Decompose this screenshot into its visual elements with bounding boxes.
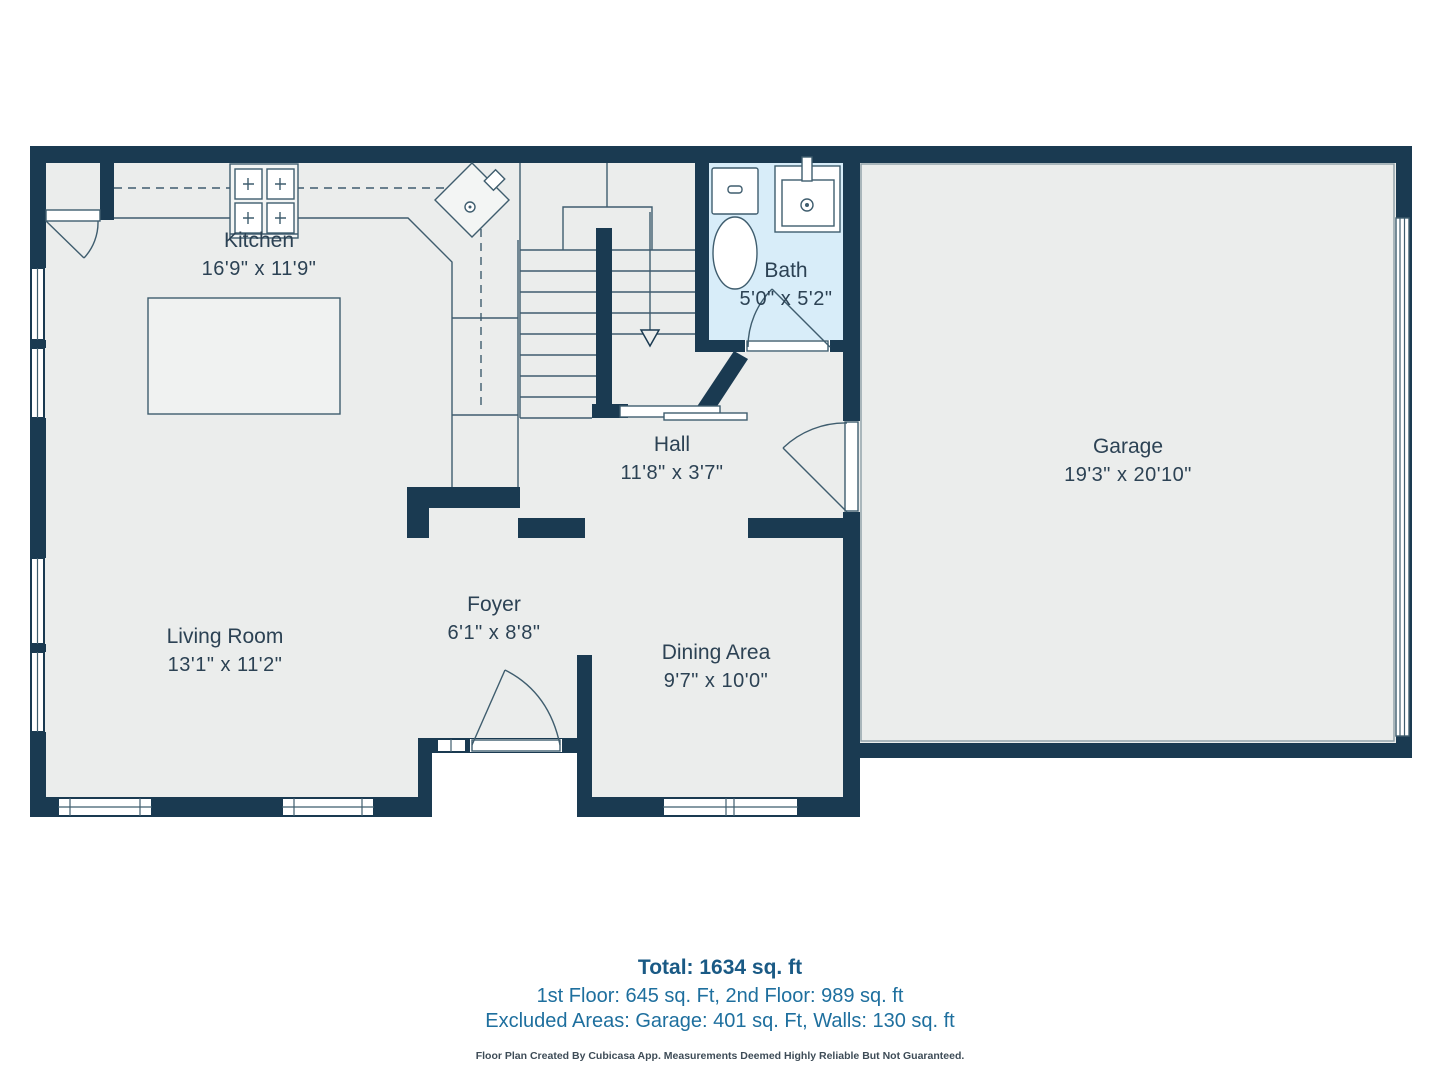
room-label-bath: Bath 5'0" x 5'2" (740, 256, 833, 314)
floor-breakdown-text: 1st Floor: 645 sq. Ft, 2nd Floor: 989 sq… (0, 985, 1440, 1008)
room-name: Foyer (448, 590, 541, 619)
room-label-garage: Garage 19'3" x 20'10" (1064, 432, 1192, 490)
garage-door-icon (1396, 218, 1409, 736)
room-name: Dining Area (662, 638, 771, 667)
room-label-hall: Hall 11'8" x 3'7" (620, 430, 723, 488)
disclaimer-text: Floor Plan Created By Cubicasa App. Meas… (0, 1050, 1440, 1062)
room-dimensions: 5'0" x 5'2" (740, 285, 833, 314)
total-area-text: Total: 1634 sq. ft (0, 956, 1440, 980)
excluded-areas-text: Excluded Areas: Garage: 401 sq. Ft, Wall… (0, 1010, 1440, 1033)
room-label-foyer: Foyer 6'1" x 8'8" (448, 590, 541, 648)
room-dimensions: 19'3" x 20'10" (1064, 461, 1192, 490)
bathroom-sink-icon (775, 157, 840, 232)
room-name: Bath (740, 256, 833, 285)
floorplan-canvas: Kitchen 16'9" x 11'9" Bath 5'0" x 5'2" G… (0, 0, 1440, 1080)
kitchen-island (148, 298, 340, 414)
room-label-living-room: Living Room 13'1" x 11'2" (167, 622, 284, 680)
floorplan-drawing (0, 0, 1440, 1080)
room-dimensions: 16'9" x 11'9" (202, 255, 317, 284)
room-dimensions: 9'7" x 10'0" (662, 667, 771, 696)
room-dimensions: 11'8" x 3'7" (620, 459, 723, 488)
room-label-dining-area: Dining Area 9'7" x 10'0" (662, 638, 771, 696)
area-summary: Total: 1634 sq. ft 1st Floor: 645 sq. Ft… (0, 956, 1440, 1062)
room-name: Living Room (167, 622, 284, 651)
room-dimensions: 6'1" x 8'8" (448, 619, 541, 648)
room-label-kitchen: Kitchen 16'9" x 11'9" (202, 226, 317, 284)
room-name: Garage (1064, 432, 1192, 461)
hall-opening (664, 413, 747, 420)
room-name: Kitchen (202, 226, 317, 255)
room-dimensions: 13'1" x 11'2" (167, 651, 284, 680)
room-name: Hall (620, 430, 723, 459)
